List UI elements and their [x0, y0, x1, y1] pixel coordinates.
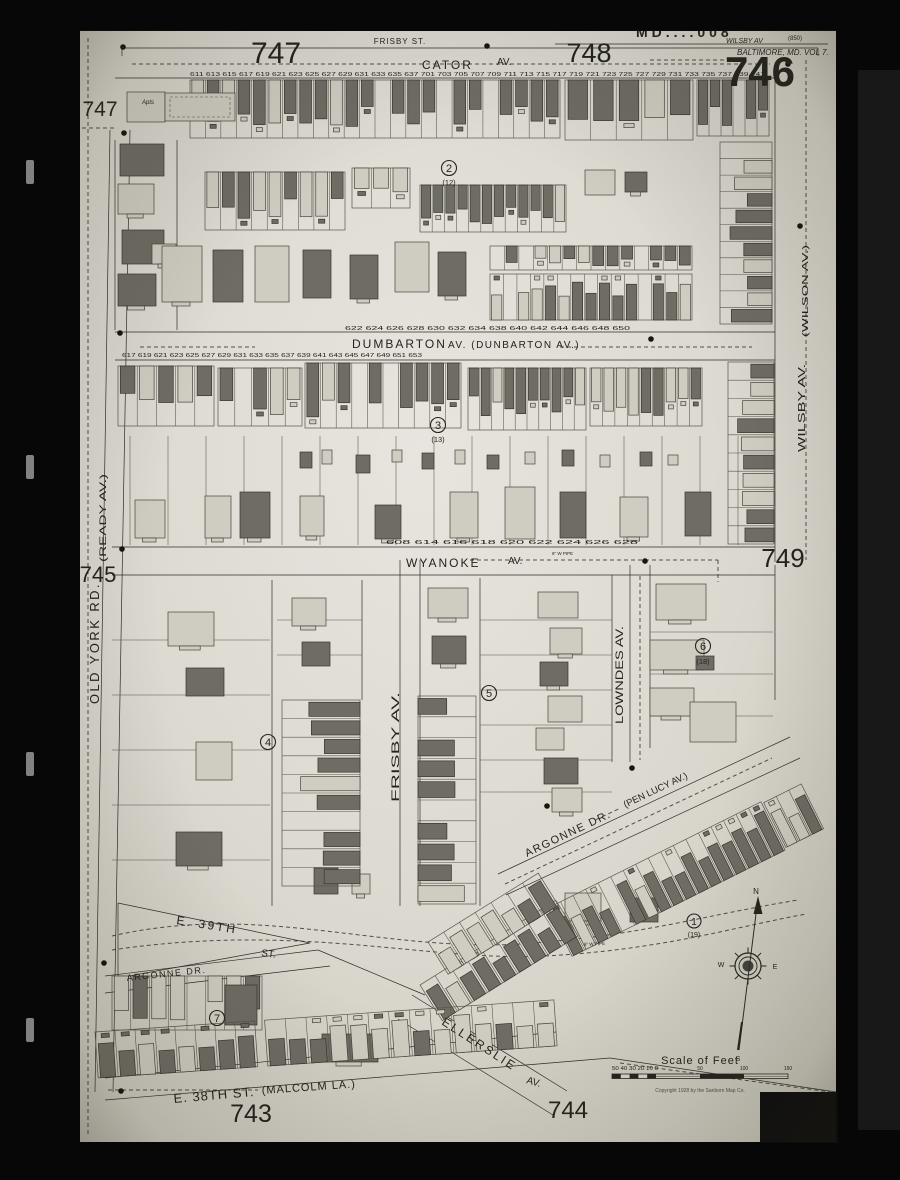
scanned-sanborn-sheet: 746 747 747 748 745 749 743 744 MD....00… [0, 0, 900, 1180]
staple [26, 752, 34, 776]
staple [26, 1018, 34, 1042]
vignette [80, 30, 836, 1142]
staple [26, 455, 34, 479]
scan-artifacts [0, 0, 900, 1180]
staple [26, 160, 34, 184]
sanborn-map-sheet: 746 747 747 748 745 749 743 744 MD....00… [0, 0, 900, 1180]
